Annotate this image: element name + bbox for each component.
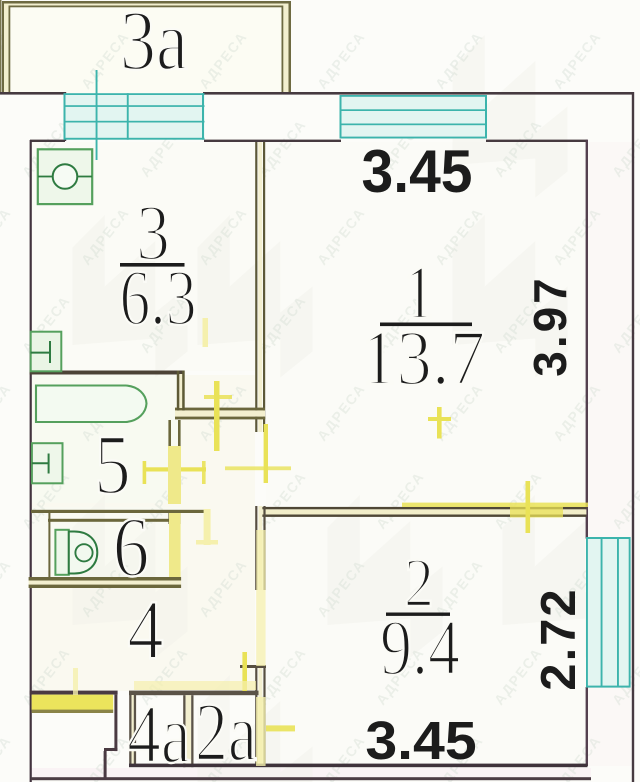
svg-text:3а: 3а bbox=[120, 0, 188, 88]
svg-text:3.45: 3.45 bbox=[362, 139, 473, 206]
svg-text:6: 6 bbox=[113, 500, 150, 595]
svg-text:3.97: 3.97 bbox=[524, 275, 576, 377]
svg-text:6.3: 6.3 bbox=[119, 255, 196, 342]
svg-text:13.7: 13.7 bbox=[361, 316, 485, 402]
svg-text:2.72: 2.72 bbox=[532, 587, 586, 690]
svg-text:3.45: 3.45 bbox=[365, 710, 476, 770]
svg-text:5: 5 bbox=[94, 418, 131, 513]
svg-text:4: 4 bbox=[127, 584, 163, 678]
svg-text:4а: 4а bbox=[127, 688, 190, 781]
svg-text:2а: 2а bbox=[195, 686, 257, 779]
svg-text:9.4: 9.4 bbox=[380, 604, 460, 692]
